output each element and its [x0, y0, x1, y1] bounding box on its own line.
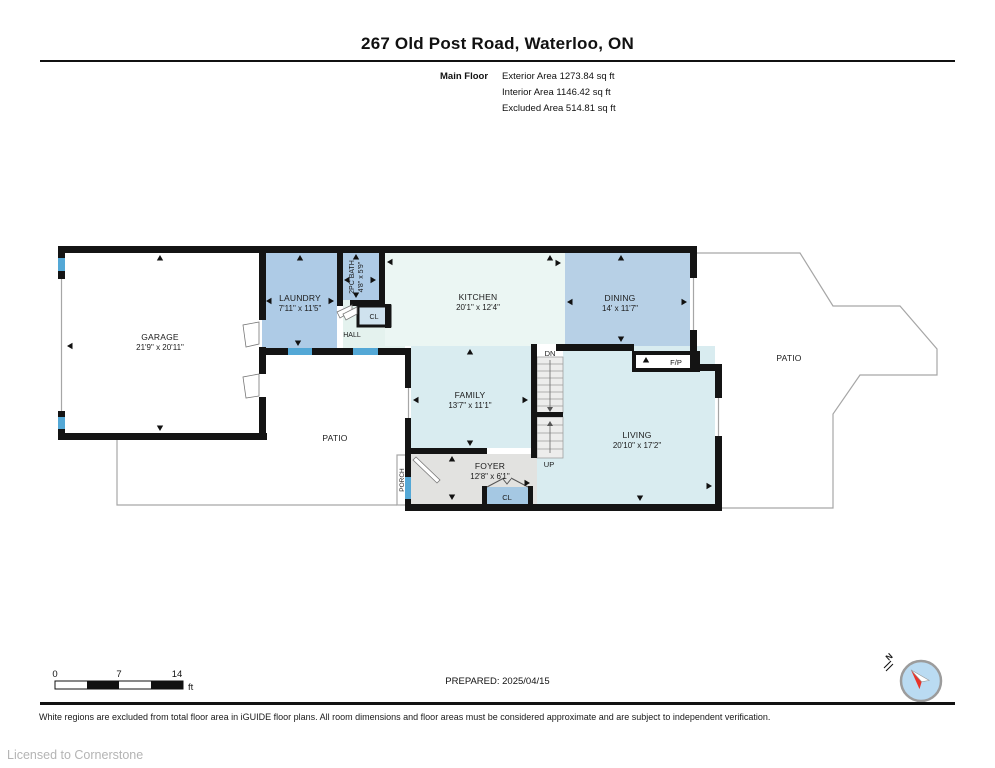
patio-right-outline	[697, 253, 937, 508]
garage-window-left-bottom	[58, 417, 65, 429]
porch-label: PORCH	[399, 468, 406, 492]
garage-dims: 21'9" x 20'11"	[136, 343, 184, 352]
living-label: LIVING	[622, 430, 651, 440]
laundry-label: LAUNDRY	[279, 293, 321, 303]
garage-laundry-door	[243, 322, 259, 347]
bath-label: 2PC BATH	[349, 260, 356, 294]
room-fills	[62, 250, 715, 504]
bath-dims: 4'8" x 5'9"	[358, 261, 365, 292]
hall-closet-label: CL	[370, 314, 379, 321]
foyer-label: FOYER	[475, 461, 505, 471]
laundry-window	[288, 348, 312, 355]
dining-label: DINING	[605, 293, 636, 303]
dining-dims: 14' x 11'7"	[602, 304, 638, 313]
hall-label: HALL	[343, 332, 361, 339]
foyer-dims: 12'8" x 6'1"	[470, 472, 510, 481]
floorplan-page: 267 Old Post Road, Waterloo, ON Main Flo…	[0, 0, 995, 768]
kitchen-dims: 20'1" x 12'4"	[456, 303, 500, 312]
fireplace-box	[634, 353, 698, 370]
footer-divider	[40, 702, 955, 705]
hall-window	[353, 348, 378, 355]
stairs-up-label: UP	[544, 460, 554, 469]
compass-north-label: N	[883, 651, 894, 663]
garage-patio-door	[243, 374, 259, 398]
family-label: FAMILY	[455, 390, 486, 400]
living-dims: 20'10" x 17'2"	[613, 441, 661, 450]
family-dims: 13'7" x 11'1"	[448, 401, 491, 410]
prepared-date: PREPARED: 2025/04/15	[0, 676, 995, 687]
fireplace-label: F/P	[670, 358, 682, 367]
disclaimer-text: White regions are excluded from total fl…	[39, 712, 770, 722]
patio-left-outline	[117, 440, 397, 505]
laundry-dims: 7'11" x 11'5"	[279, 304, 322, 313]
stairs-down-label: DN	[545, 349, 556, 358]
kitchen-label: KITCHEN	[459, 292, 498, 302]
garage-label: GARAGE	[141, 332, 179, 342]
garage-window-left-top	[58, 258, 65, 271]
patio-right-label: PATIO	[776, 353, 801, 363]
foyer-closet-label: CL	[502, 493, 512, 502]
staircase	[537, 344, 563, 458]
patio-left-label: PATIO	[322, 433, 347, 443]
license-text: Licensed to Cornerstone	[7, 748, 143, 762]
floor-plan-canvas: GARAGE 21'9" x 20'11" LAUNDRY 7'11" x 11…	[0, 0, 995, 768]
